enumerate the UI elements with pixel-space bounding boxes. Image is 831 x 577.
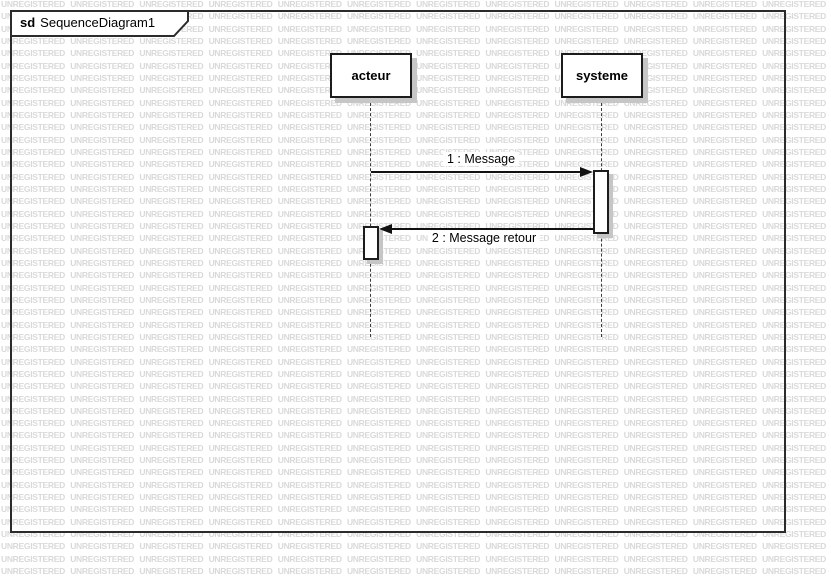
diagram-canvas: UNREGISTEREDUNREGISTEREDUNREGISTEREDUNRE… [0,0,831,577]
lifeline-head-systeme[interactable]: systeme [561,53,643,98]
frame-keyword: sd [20,15,35,30]
message-2-label[interactable]: 2 : Message retour [428,231,540,245]
message-1-arrowhead-icon [580,167,593,177]
lifeline-head-acteur[interactable]: acteur [330,53,412,98]
message-1-line[interactable] [371,171,580,173]
frame-name: SequenceDiagram1 [40,15,155,30]
activation-bar-systeme[interactable] [593,170,609,234]
lifeline-line-acteur[interactable] [370,98,371,337]
activation-bar-acteur[interactable] [363,226,379,260]
message-2-arrowhead-icon [379,224,392,234]
frame-title-tab[interactable]: sdSequenceDiagram1 [10,10,190,37]
frame-title-text: sdSequenceDiagram1 [20,15,155,30]
message-1-label[interactable]: 1 : Message [443,152,519,166]
message-2-line[interactable] [392,228,593,230]
